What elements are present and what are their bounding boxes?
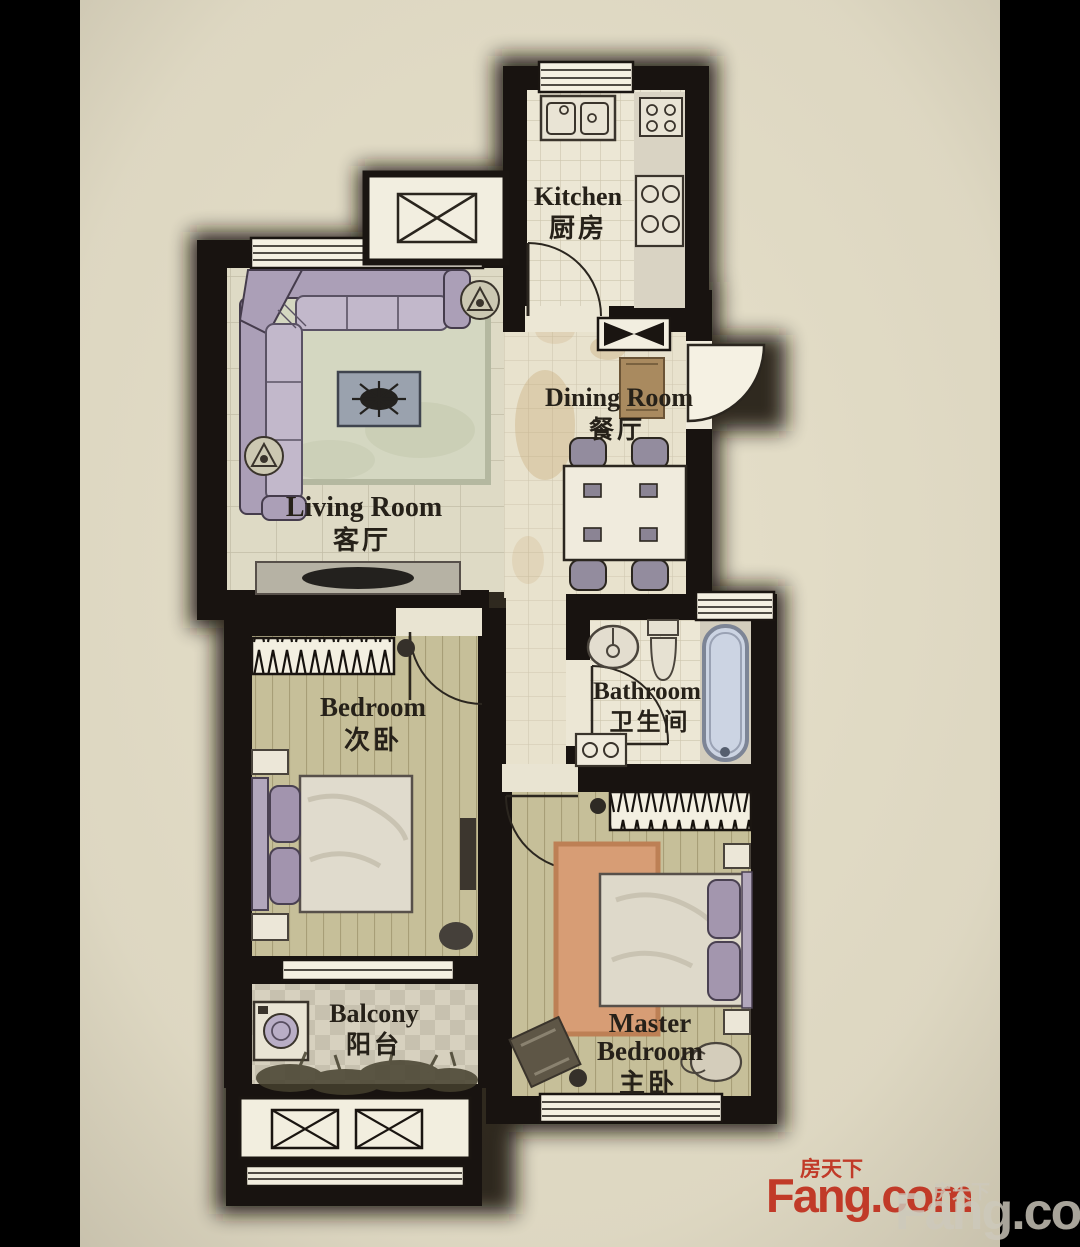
coffee-table-icon [338,372,420,426]
kitchen-window [539,62,633,92]
kitchen-label: Kitchen [534,182,623,211]
balcony-railing [240,1098,470,1186]
dresser-icon [460,818,476,890]
shaft-box-icon [366,174,506,262]
plant-icon [245,437,283,475]
dining-label-zh: 餐厅 [589,416,645,444]
dining-label: Dining Room [545,383,693,412]
balcony-washer-icon [254,1002,308,1060]
bedroom-plant-icon [397,639,415,657]
tv-console-icon [256,562,460,594]
bedroom-label-zh: 次卧 [344,726,402,755]
letterbox-left [0,0,80,1247]
master-window [540,1094,722,1122]
living-label: Living Room [286,492,442,523]
bathroom-sink-icon [588,626,638,668]
kitchen-door-opening [525,306,609,332]
floorplan-photo: Kitchen 厨房 Dining Room 餐厅 Living Room 客厅… [0,0,1080,1247]
hallway-floor [506,598,566,766]
master-label-zh: 主卧 [619,1069,677,1098]
bedroom-label: Bedroom [320,692,427,722]
bathroom-window [696,592,774,620]
watermark-fang-gray: 房天下 Fang.com [895,1180,1080,1241]
master-label-line1: Master [609,1008,691,1038]
master-door-opening [502,764,578,792]
kitchen-label-zh: 厨房 [549,214,607,243]
letterbox-right [1000,0,1080,1247]
stool-icon [439,922,473,950]
bedroom-door-opening [396,608,482,636]
sink-icon [541,96,615,140]
fang-watermark-text: Fang.com [895,1183,1080,1241]
appliance-icon [640,98,682,136]
master-door-knob [590,798,606,814]
master-bed-icon [600,872,752,1008]
footstool-icon [569,1069,587,1087]
living-label-zh: 客厅 [333,525,391,555]
bathroom-label: Bathroom [593,678,701,705]
vent-box-icon [598,318,670,350]
washer-icon [576,734,626,766]
dining-table-icon [564,466,686,560]
plant-icon [461,281,499,319]
bathtub-icon [704,626,747,760]
balcony-label: Balcony [329,999,419,1028]
master-wardrobe-icon [610,792,751,830]
wardrobe-icon [252,638,394,674]
balcony-label-zh: 阳台 [346,1030,402,1059]
stove-icon [636,176,683,246]
master-label-line2: Bedroom [597,1036,704,1066]
bathroom-label-zh: 卫生间 [610,709,691,736]
